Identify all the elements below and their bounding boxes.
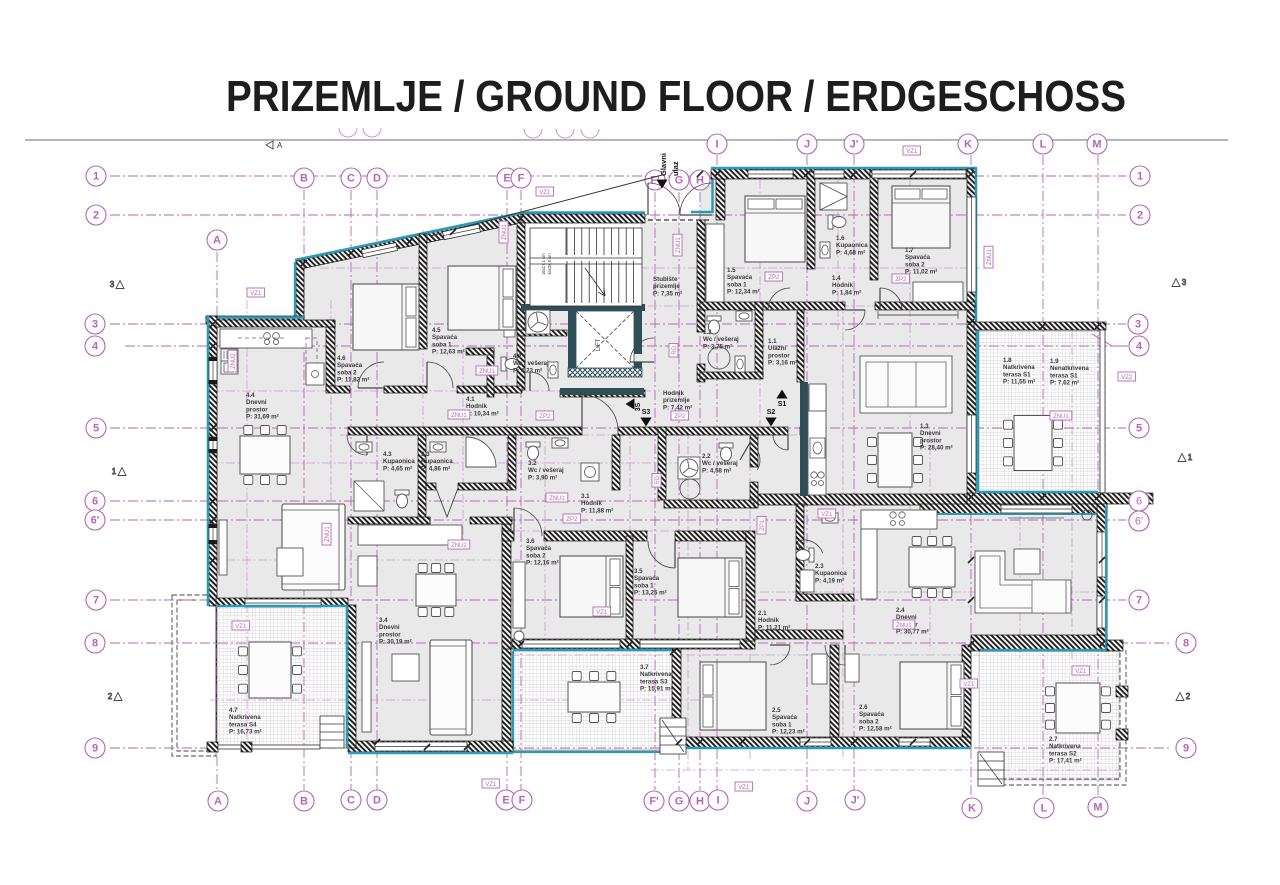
svg-text:E: E	[502, 795, 509, 807]
svg-text:8: 8	[92, 638, 98, 650]
svg-text:9: 9	[92, 743, 98, 755]
svg-text:4: 4	[92, 341, 99, 353]
svg-text:2: 2	[108, 692, 113, 701]
svg-text:VZ1: VZ1	[1075, 669, 1087, 675]
svg-text:ZNU2: ZNU2	[451, 543, 467, 549]
svg-text:1: 1	[93, 171, 99, 183]
svg-text:ZNU1: ZNU1	[1053, 414, 1069, 420]
svg-text:2: 2	[1186, 692, 1191, 701]
svg-text:VZ1: VZ1	[738, 785, 750, 791]
svg-text:6': 6'	[1135, 516, 1143, 528]
svg-text:16x28,5 cm: 16x28,5 cm	[547, 253, 552, 275]
svg-text:3: 3	[1182, 278, 1187, 287]
svg-text:3Š: 3Š	[633, 402, 642, 411]
svg-text:VZ1: VZ1	[250, 291, 262, 297]
svg-text:L: L	[1041, 803, 1048, 815]
svg-text:A: A	[214, 796, 222, 808]
svg-text:E: E	[503, 173, 510, 185]
svg-text:A: A	[277, 141, 283, 150]
svg-text:B: B	[300, 796, 308, 808]
svg-text:J: J	[804, 796, 810, 808]
svg-text:S3: S3	[642, 409, 651, 416]
svg-text:2: 2	[1137, 210, 1143, 222]
svg-text:7: 7	[1136, 595, 1142, 607]
svg-text:I: I	[716, 795, 719, 807]
svg-text:ZP2: ZP2	[768, 275, 780, 281]
svg-text:VZ1: VZ1	[235, 624, 247, 630]
svg-text:RD: RD	[672, 345, 678, 354]
svg-text:4: 4	[1136, 341, 1143, 353]
svg-text:S1: S1	[778, 401, 787, 408]
svg-text:Glavni: Glavni	[659, 153, 668, 176]
svg-text:8: 8	[1183, 638, 1189, 650]
svg-text:M: M	[1093, 802, 1102, 814]
svg-text:VZ1: VZ1	[485, 782, 497, 788]
svg-text:1: 1	[1188, 453, 1193, 462]
svg-text:ZNU1: ZNU1	[549, 496, 565, 502]
svg-text:5: 5	[93, 423, 99, 435]
svg-text:7: 7	[93, 595, 99, 607]
svg-text:6': 6'	[91, 515, 100, 527]
svg-text:J: J	[804, 139, 810, 151]
svg-text:VZ1: VZ1	[821, 512, 833, 518]
svg-text:B: B	[300, 173, 308, 185]
svg-text:6: 6	[1136, 496, 1142, 508]
svg-text:ZNU1: ZNU1	[896, 623, 912, 629]
svg-text:3: 3	[110, 280, 115, 289]
svg-text:D: D	[373, 795, 381, 807]
svg-text:5: 5	[1136, 423, 1142, 435]
svg-text:I: I	[715, 139, 718, 151]
svg-text:VZ2: VZ2	[1121, 375, 1133, 381]
svg-text:K: K	[964, 139, 972, 151]
svg-text:G: G	[675, 796, 684, 808]
svg-text:F': F'	[649, 796, 659, 808]
svg-text:VZ1: VZ1	[539, 190, 551, 196]
svg-text:3: 3	[92, 319, 98, 331]
svg-text:J': J'	[851, 795, 860, 807]
svg-text:6: 6	[92, 496, 98, 508]
svg-text:A: A	[213, 235, 221, 247]
svg-text:3: 3	[1135, 319, 1141, 331]
svg-text:F: F	[518, 173, 525, 185]
svg-text:ZNU1: ZNU1	[987, 249, 993, 265]
svg-text:ZP2: ZP2	[566, 517, 578, 523]
svg-text:ulaz: ulaz	[671, 161, 680, 176]
svg-text:ZP1: ZP1	[760, 519, 766, 531]
svg-text:VZ1: VZ1	[596, 610, 608, 616]
svg-text:2: 2	[93, 210, 99, 222]
svg-text:ZNU1: ZNU1	[676, 237, 682, 253]
svg-text:K: K	[968, 803, 976, 815]
svg-text:ZP2: ZP2	[674, 414, 686, 420]
svg-text:ZNU1: ZNU1	[451, 413, 467, 419]
svg-text:1: 1	[1137, 171, 1143, 183]
svg-text:S2: S2	[767, 409, 776, 416]
svg-text:VZ1: VZ1	[963, 682, 975, 688]
svg-text:ZNU1: ZNU1	[325, 526, 331, 542]
svg-text:ZNU1: ZNU1	[479, 369, 495, 375]
svg-text:J': J'	[850, 139, 859, 151]
svg-text:PRIZEMLJE / GROUND FLOOR / ERD: PRIZEMLJE / GROUND FLOOR / ERDGESCHOSS	[226, 72, 1126, 121]
svg-text:1: 1	[112, 467, 117, 476]
svg-text:L: L	[1040, 139, 1047, 151]
svg-text:ZNU2: ZNU2	[231, 353, 237, 369]
svg-text:D: D	[373, 173, 381, 185]
svg-text:ZP2: ZP2	[895, 277, 907, 283]
svg-text:C: C	[347, 173, 355, 185]
svg-text:9: 9	[1183, 743, 1189, 755]
svg-text:H: H	[696, 796, 704, 808]
svg-text:M: M	[1092, 139, 1101, 151]
svg-text:LIFT: LIFT	[596, 339, 602, 352]
svg-text:F: F	[519, 795, 526, 807]
svg-text:ZNU1: ZNU1	[502, 224, 508, 240]
svg-text:16x17,1 cm: 16x17,1 cm	[541, 253, 546, 275]
svg-text:ZP2: ZP2	[539, 414, 551, 420]
svg-text:C: C	[347, 795, 355, 807]
svg-text:RD: RD	[655, 475, 661, 484]
svg-text:VZ1: VZ1	[906, 149, 918, 155]
